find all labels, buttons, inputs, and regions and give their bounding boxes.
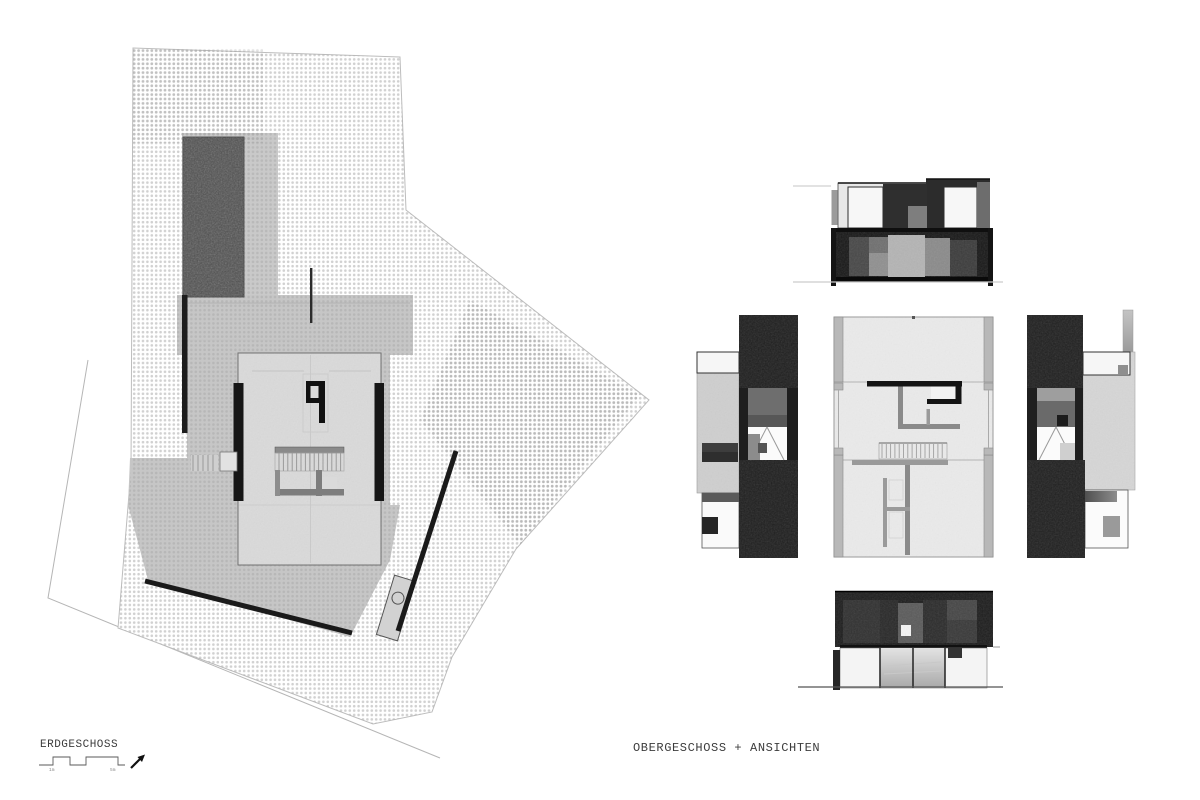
north-arrow-icon	[131, 755, 145, 769]
window-recess-west	[748, 388, 787, 460]
title-block-left: ERDGESCHOSS 1m 5m	[39, 739, 145, 773]
halftone-dark-patch-north	[133, 48, 263, 143]
elevation-north	[793, 179, 1003, 286]
drawing-sheet: ERDGESCHOSS 1m 5m OBERGESCHOSS + ANSICHT…	[0, 0, 1200, 800]
plan-tick	[912, 316, 915, 319]
porch-column	[833, 650, 840, 690]
garden-wall-west	[182, 295, 188, 433]
window-box-west-bottom	[702, 493, 739, 548]
scale-label-1m: 1m	[49, 767, 55, 773]
upper-floor-plan	[834, 316, 993, 557]
lower-storey-north	[831, 228, 993, 286]
upper-storey-south	[835, 591, 993, 647]
ground-floor-title: ERDGESCHOSS	[40, 739, 118, 751]
architecture-drawing: ERDGESCHOSS 1m 5m OBERGESCHOSS + ANSICHT…	[0, 0, 1200, 800]
window-upper-left	[848, 187, 883, 228]
scale-label-5m: 5m	[110, 767, 116, 773]
elevation-west	[697, 315, 798, 558]
window-west-top	[697, 352, 739, 373]
pool	[183, 137, 244, 297]
lower-storey-south	[833, 648, 987, 690]
window-recess-east	[1037, 388, 1075, 460]
elevation-east	[1027, 310, 1135, 558]
chimney	[1123, 310, 1133, 353]
scale-bar: 1m 5m	[39, 757, 125, 773]
elevation-south	[798, 591, 1003, 690]
wall-bar-east	[375, 383, 385, 501]
window-box-east-bottom	[1085, 490, 1128, 548]
floor-slab	[831, 228, 993, 232]
wall-bar-west	[234, 383, 244, 501]
wall-return	[832, 190, 838, 225]
floor-slab-south	[840, 645, 987, 648]
upper-floor-title: OBERGESCHOSS + ANSICHTEN	[633, 741, 820, 755]
window-upper-right	[944, 187, 977, 228]
title-block-right: OBERGESCHOSS + ANSICHTEN	[633, 741, 820, 755]
site-plan-erdgeschoss	[48, 48, 649, 758]
path-edge-wall	[310, 268, 312, 323]
